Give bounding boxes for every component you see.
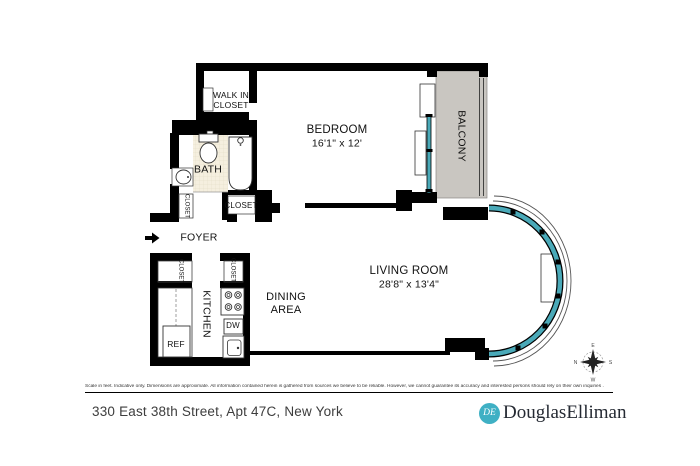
brand-wordmark: DouglasElliman (503, 402, 626, 424)
compass-n: N (574, 360, 578, 366)
floorplan-drawing: E N S W (0, 0, 700, 466)
brand-monogram-icon: DE (479, 403, 500, 424)
label-bedroom-dims: 16'1" x 12' (312, 138, 362, 151)
curved-glass-wall (489, 196, 571, 366)
compass-s: S (609, 360, 613, 366)
bedroom-glazing (415, 84, 435, 193)
label-balcony: BALCONY (455, 110, 468, 162)
stove (221, 288, 244, 315)
label-ref: REF (167, 339, 185, 349)
label-living-room-dims: 28'8" x 13'4" (379, 279, 439, 292)
label-closet-bedroom: CLOSET (224, 201, 257, 211)
floorplan-page: E N S W WALK IN CLOSET BEDROOM 16'1" x 1… (0, 0, 700, 466)
label-dining-area: DINING AREA (266, 291, 306, 317)
label-walk-in-closet: WALK IN CLOSET (213, 90, 249, 110)
label-bath: BATH (194, 164, 222, 177)
toilet-tank (199, 134, 218, 142)
compass-w: W (591, 378, 596, 384)
ptac-unit (415, 131, 426, 175)
compass-rose: E N S W (574, 343, 613, 384)
label-closet-kitchen-left: CLOSET (176, 259, 183, 283)
wic-door-leaf (203, 88, 213, 111)
entry-arrow (145, 233, 160, 244)
brand-logo: DE DouglasElliman (479, 402, 626, 424)
sliding-door-leaf (420, 84, 435, 117)
label-closet-hall: CLOSET (182, 194, 189, 218)
compass-e: E (591, 343, 595, 349)
label-foyer: FOYER (180, 232, 217, 245)
toilet-bowl (200, 143, 217, 163)
address-text: 330 East 38th Street, Apt 47C, New York (92, 404, 343, 419)
label-dw: DW (226, 321, 240, 331)
label-kitchen: KITCHEN (200, 290, 213, 338)
disclaimer-text: Scale in feet. Indicative only. Dimensio… (85, 384, 613, 393)
label-bedroom: BEDROOM (307, 124, 368, 138)
label-closet-kitchen-right: CLOSET (228, 258, 235, 282)
label-living-room: LIVING ROOM (370, 265, 449, 279)
